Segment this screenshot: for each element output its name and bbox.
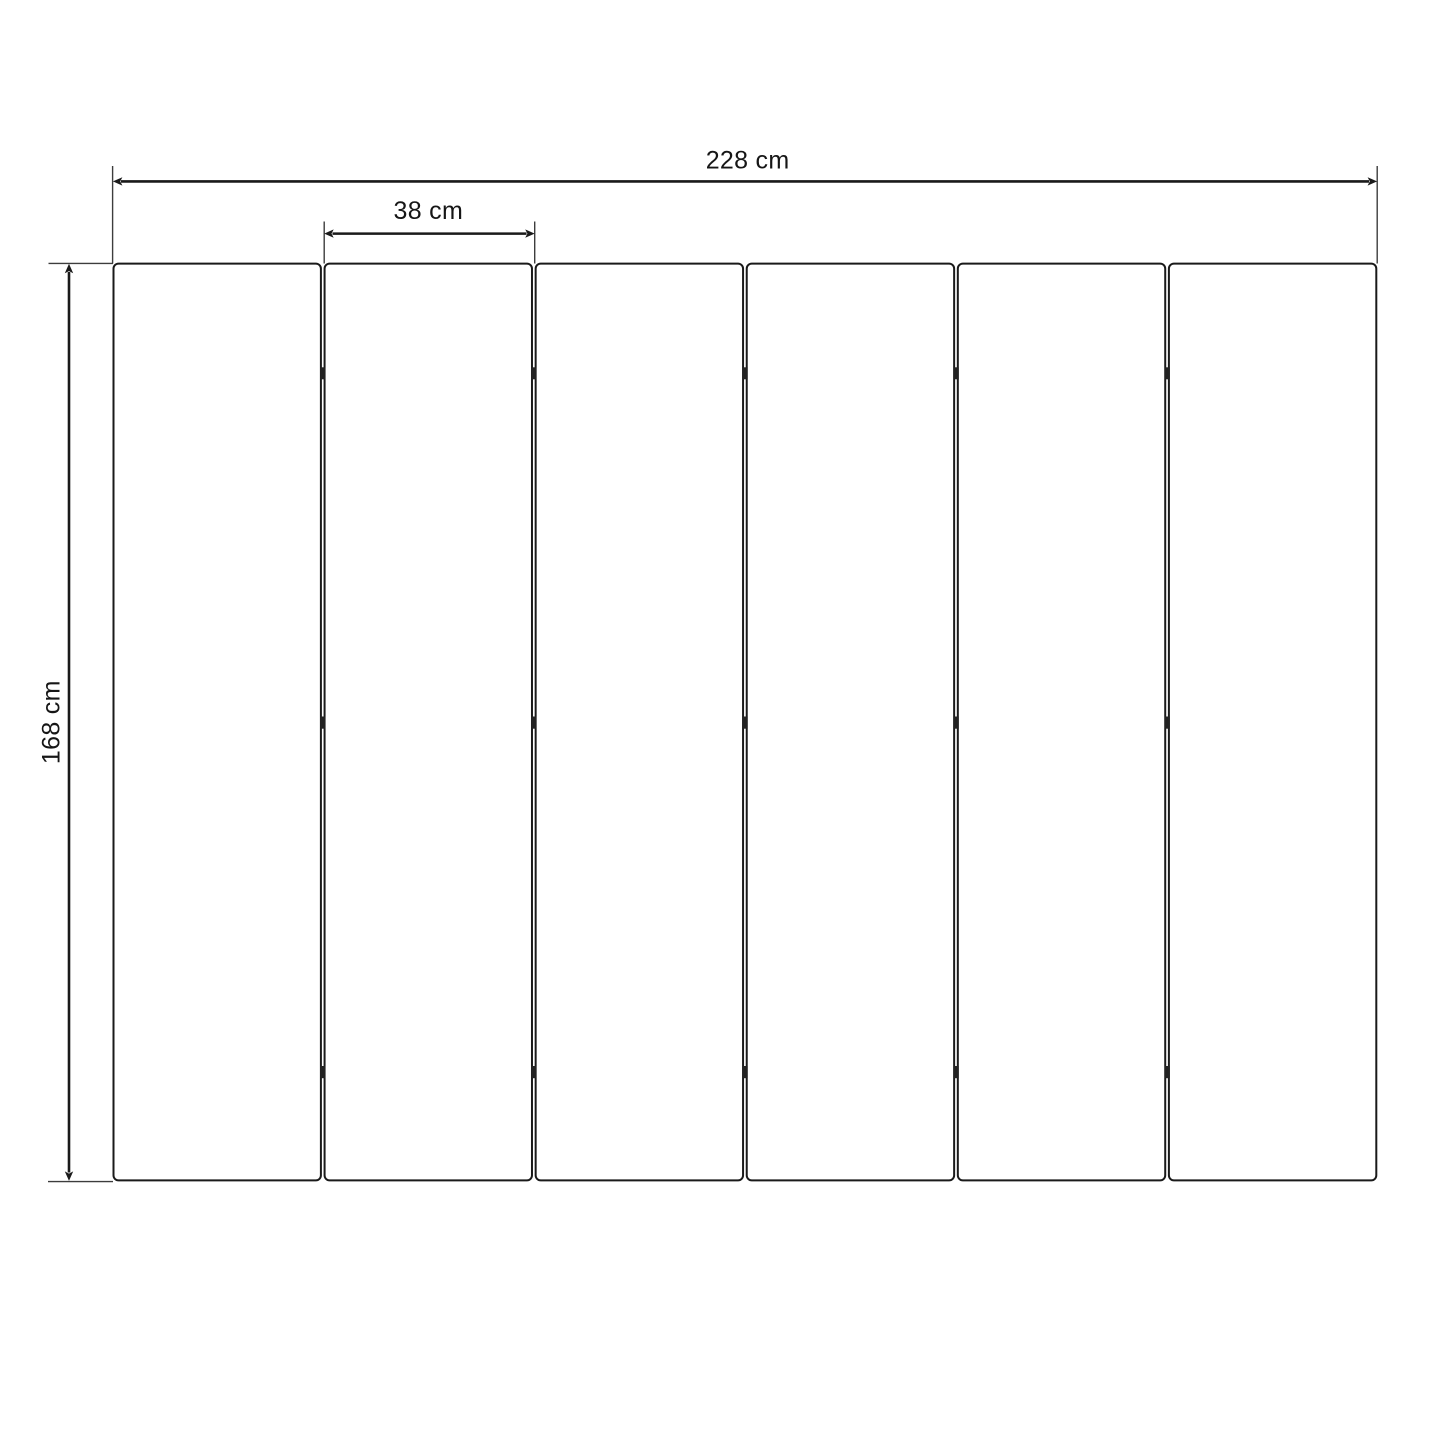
svg-text:228 cm: 228 cm (706, 146, 790, 174)
svg-text:168 cm: 168 cm (37, 680, 65, 764)
svg-text:38 cm: 38 cm (394, 197, 464, 225)
